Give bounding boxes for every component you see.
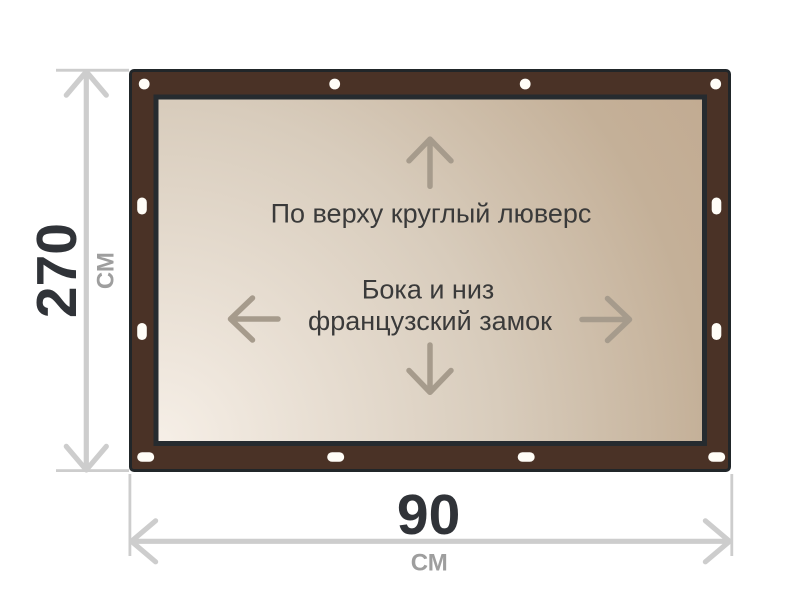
svg-text:Бока и низ: Бока и низ: [362, 274, 495, 304]
svg-text:270: 270: [25, 223, 89, 318]
svg-text:По верху круглый люверс: По верху круглый люверс: [271, 199, 592, 229]
svg-text:СМ: СМ: [92, 252, 119, 289]
svg-text:90: 90: [397, 483, 460, 547]
svg-text:СМ: СМ: [411, 550, 448, 577]
svg-text:французский замок: французский замок: [308, 306, 552, 336]
